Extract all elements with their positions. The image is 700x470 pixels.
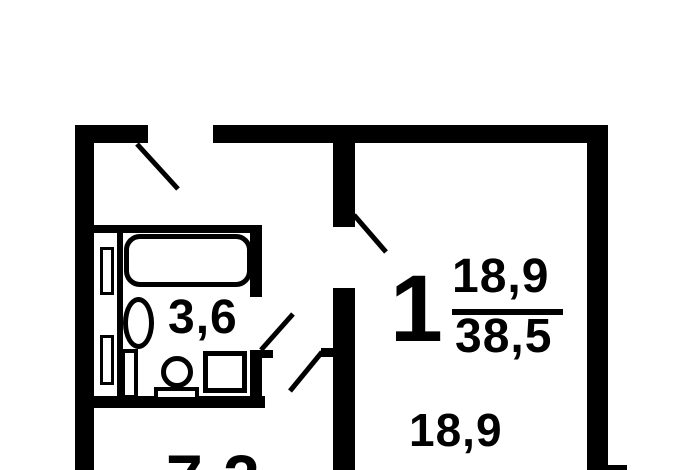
living-room-door-swing-icon bbox=[354, 215, 386, 252]
door-swing-lines bbox=[0, 0, 700, 470]
total-area-label: 38,5 bbox=[455, 313, 552, 361]
entry-door-swing-icon bbox=[137, 144, 178, 189]
hall-door-swing-icon bbox=[290, 352, 322, 391]
room-count-label: 1 bbox=[390, 262, 443, 357]
hall-area-label: 7,2 bbox=[166, 445, 261, 470]
bathroom-area-label: 3,6 bbox=[168, 294, 238, 342]
living-area-label: 18,9 bbox=[452, 253, 549, 301]
room-area-label: 18,9 bbox=[409, 407, 503, 453]
floor-plan-canvas: 3,6 1 18,9 38,5 18,9 7,2 bbox=[0, 0, 700, 470]
bathroom-door-swing-icon bbox=[261, 314, 293, 350]
